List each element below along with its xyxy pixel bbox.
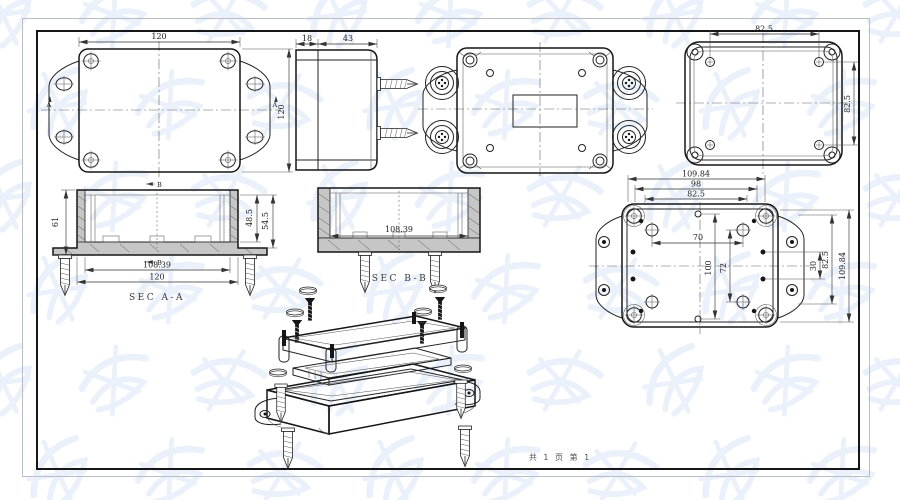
dim-boss-span-h: 70: [693, 233, 703, 242]
exploded-base: [255, 364, 480, 434]
dim-width-mid: 98: [691, 180, 701, 189]
dim-width-outer: 109.84: [682, 170, 710, 179]
dim-body-depth: 43: [343, 34, 353, 43]
dim-boss-span-v: 72: [719, 263, 728, 273]
exploded-lid: [279, 312, 467, 372]
dim-bb-inner-width: 108.39: [385, 225, 413, 234]
bottom-view-outline: [423, 48, 647, 173]
top-view-corner-screws: [82, 52, 238, 170]
dim-cover-height: 82.5: [843, 95, 852, 113]
section-marker-a-left: A: [46, 101, 52, 109]
bottom-view-corner-gussets: [459, 52, 611, 169]
sec-aa-walls: [53, 190, 267, 255]
base-view-right-dimensions: 30 82.5 109.84: [766, 210, 854, 322]
side-view-outline: [296, 50, 377, 170]
base-view-top-dimensions: 109.84 98 82.5: [628, 170, 765, 203]
base-view-bosses: [631, 211, 766, 322]
base-view-inner-dimensions: 70 100 72: [652, 214, 743, 319]
section-marker-a-right: A: [272, 101, 278, 109]
dim-lid-depth: 18: [302, 34, 312, 43]
top-view-outline: [49, 49, 270, 172]
sec-aa-width-dimensions: 108.39 120: [77, 257, 238, 285]
side-view-drawing: 18 43: [293, 32, 415, 174]
bottom-view-drawing: [418, 40, 653, 178]
dim-top-height: 120: [277, 104, 286, 119]
cover-view-lid-screws: [706, 58, 824, 150]
bottom-view-centerlines: [418, 42, 653, 176]
exploded-view-drawing: [253, 268, 498, 473]
section-a-markers: A A: [46, 96, 278, 109]
dim-inner-width: 108.39: [143, 261, 171, 270]
dim-inner-depth: 48.5: [245, 209, 254, 227]
exploded-wall-anchors: [270, 365, 472, 469]
top-view-width-dimension: 120: [79, 32, 240, 47]
dim-right-outer: 109.84: [838, 252, 847, 280]
section-aa-label: SEC A-A: [129, 293, 185, 303]
section-marker-b-top: B: [157, 181, 162, 189]
dim-right-inner: 30: [809, 261, 818, 271]
top-view-height-dimension: 120: [242, 49, 293, 172]
page-footer: 共 1 页 第 1: [505, 452, 615, 463]
side-view-anchor-screws: [377, 78, 418, 140]
dim-right-mid: 82.5: [821, 251, 830, 269]
sec-bb-width-dimension: 108.39: [330, 225, 468, 238]
dim-cover-width: 82.5: [755, 25, 773, 34]
dim-width-inner: 82.5: [687, 190, 705, 199]
bottom-view-small-holes: [487, 70, 586, 152]
bottom-view-center-recess: [513, 95, 577, 127]
dim-total-height: 61: [51, 217, 60, 227]
dim-outer-width: 120: [149, 273, 164, 282]
cover-view-drawing: 82.5 82.5: [662, 25, 867, 183]
top-view-drawing: 120 120 A A: [45, 28, 295, 178]
drawing-sheet: 120 120 A A: [0, 0, 900, 500]
cover-view-outline: [685, 42, 842, 165]
base-view-drawing: 109.84 98 82.5 70 100 72: [593, 172, 888, 337]
dim-top-width: 120: [151, 32, 166, 41]
cover-view-width-dimension: 82.5: [710, 25, 819, 58]
dim-base-height: 54.5: [261, 212, 270, 230]
side-view-dimensions: 18 43: [296, 34, 377, 48]
top-view-flange-holes: [54, 76, 265, 145]
exploded-gasket: [293, 348, 451, 385]
exploded-lid-screws: [292, 297, 445, 344]
dim-hole-span-v: 100: [704, 260, 713, 275]
